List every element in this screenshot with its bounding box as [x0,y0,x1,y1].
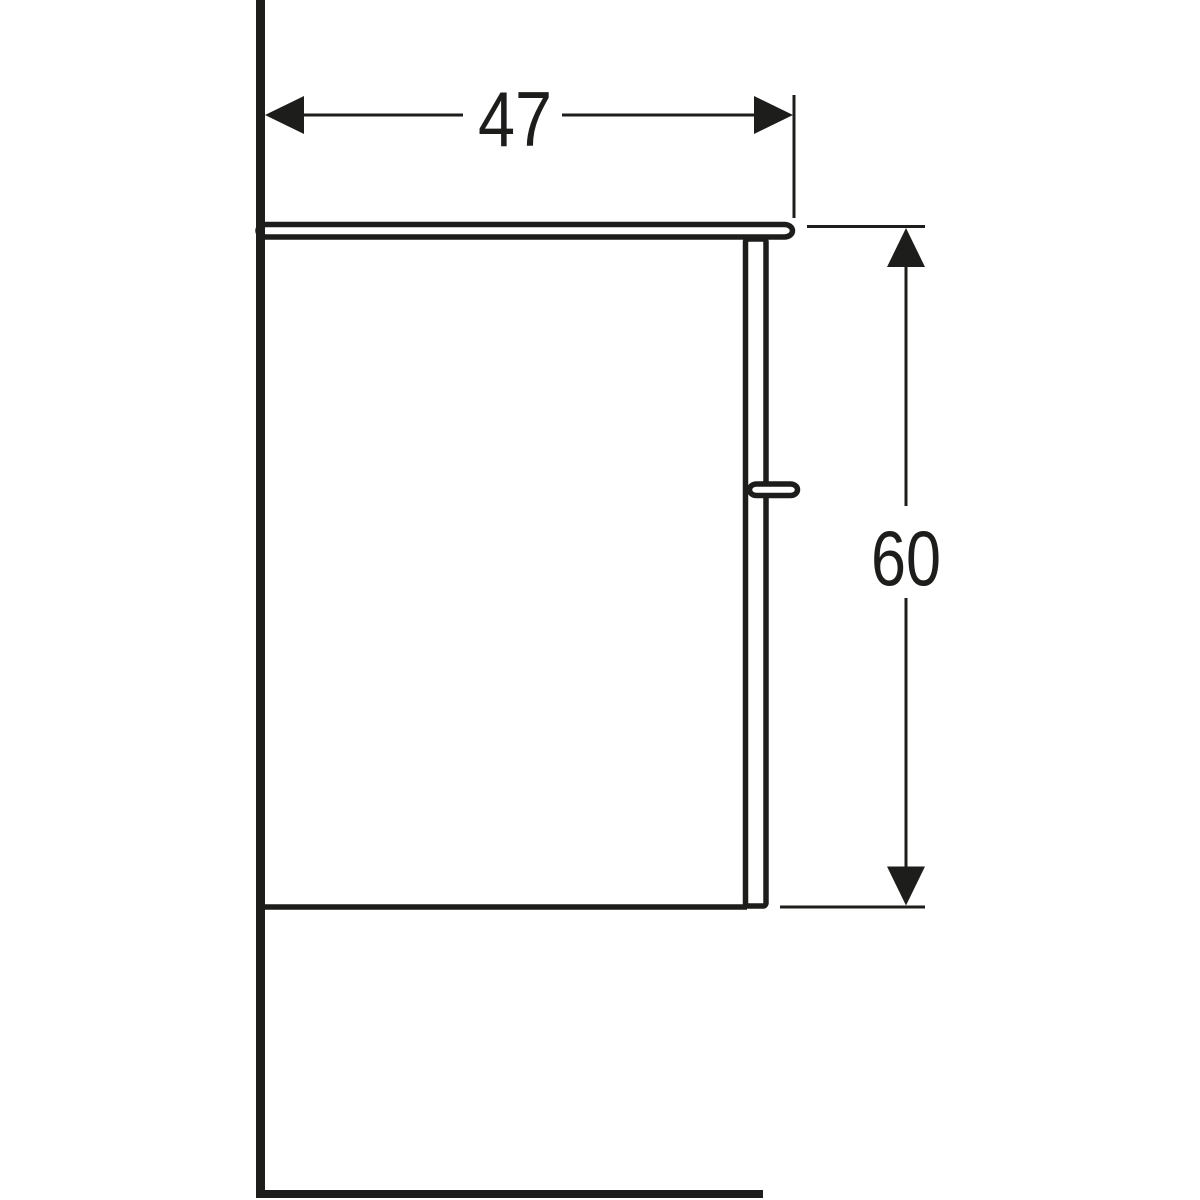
width-dim-arrow-right-icon [754,96,793,134]
floor-line [256,1190,763,1198]
cabinet-door-panel [746,239,767,906]
door-handle [750,484,798,496]
height-dim-arrow-down-icon [887,867,925,906]
height-dim-arrow-up-icon [887,228,925,267]
wall-line [256,0,265,1198]
width-dim-arrow-left-icon [265,96,304,134]
cabinet-side-view-drawing: 47 60 [0,0,1200,1200]
technical-drawing-canvas: 47 60 [0,0,1200,1200]
height-dim-label: 60 [871,514,941,602]
width-dim-label: 47 [478,75,552,163]
countertop-panel [258,225,793,238]
